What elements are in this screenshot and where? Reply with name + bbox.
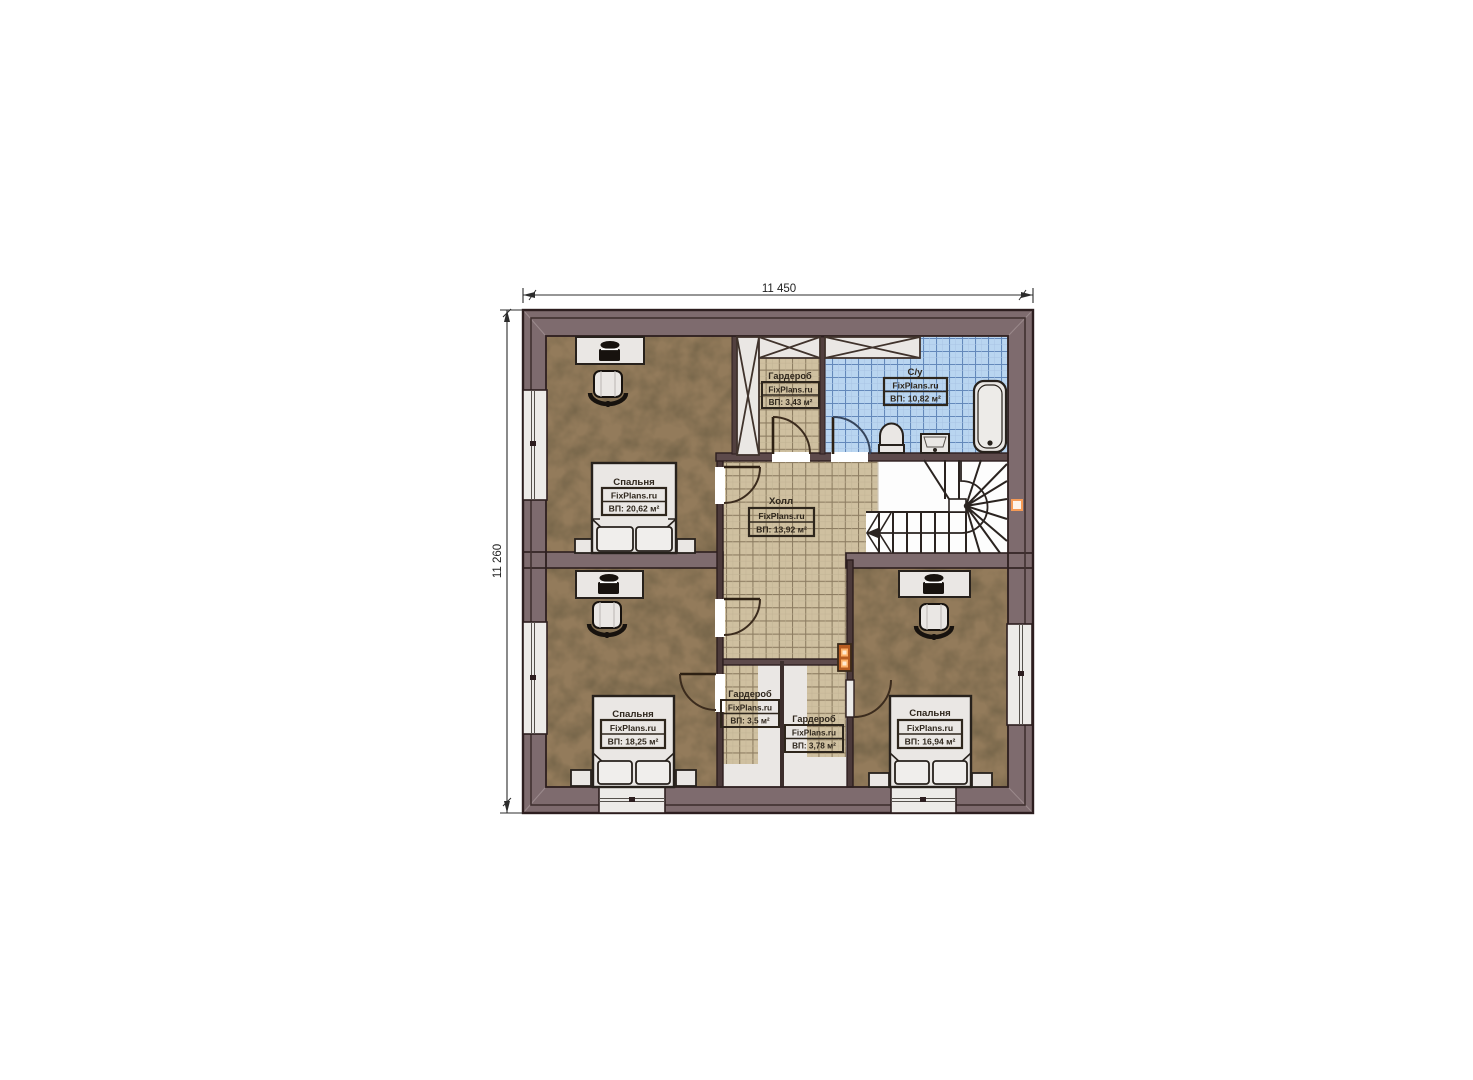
svg-text:Спальня: Спальня xyxy=(909,708,950,719)
svg-text:ВП: 3,43 м²: ВП: 3,43 м² xyxy=(769,398,813,407)
svg-text:ВП: 10,82 м²: ВП: 10,82 м² xyxy=(890,394,941,404)
svg-text:FixPlans.ru: FixPlans.ru xyxy=(768,386,812,395)
svg-text:Гардероб: Гардероб xyxy=(768,371,812,381)
svg-text:FixPlans.ru: FixPlans.ru xyxy=(907,723,953,733)
svg-text:ВП: 3,5 м²: ВП: 3,5 м² xyxy=(730,717,770,726)
svg-text:11 260: 11 260 xyxy=(492,544,504,578)
svg-text:Спальня: Спальня xyxy=(613,477,654,488)
svg-text:Гардероб: Гардероб xyxy=(728,689,772,699)
svg-text:Холл: Холл xyxy=(769,496,793,507)
svg-text:ВП: 13,92 м²: ВП: 13,92 м² xyxy=(756,525,807,535)
svg-text:С/у: С/у xyxy=(908,367,924,378)
svg-text:Спальня: Спальня xyxy=(612,709,653,720)
svg-text:ВП: 18,25 м²: ВП: 18,25 м² xyxy=(608,737,659,747)
svg-text:ВП: 20,62 м²: ВП: 20,62 м² xyxy=(609,504,660,514)
svg-text:FixPlans.ru: FixPlans.ru xyxy=(892,381,938,391)
svg-text:FixPlans.ru: FixPlans.ru xyxy=(728,704,772,713)
svg-text:Гардероб: Гардероб xyxy=(792,714,836,724)
svg-text:FixPlans.ru: FixPlans.ru xyxy=(758,511,804,521)
svg-text:FixPlans.ru: FixPlans.ru xyxy=(792,729,836,738)
svg-text:FixPlans.ru: FixPlans.ru xyxy=(611,491,657,501)
svg-text:11 450: 11 450 xyxy=(762,283,796,295)
svg-text:ВП: 16,94 м²: ВП: 16,94 м² xyxy=(905,737,956,747)
svg-text:FixPlans.ru: FixPlans.ru xyxy=(610,723,656,733)
svg-text:ВП: 3,78 м²: ВП: 3,78 м² xyxy=(792,742,836,751)
